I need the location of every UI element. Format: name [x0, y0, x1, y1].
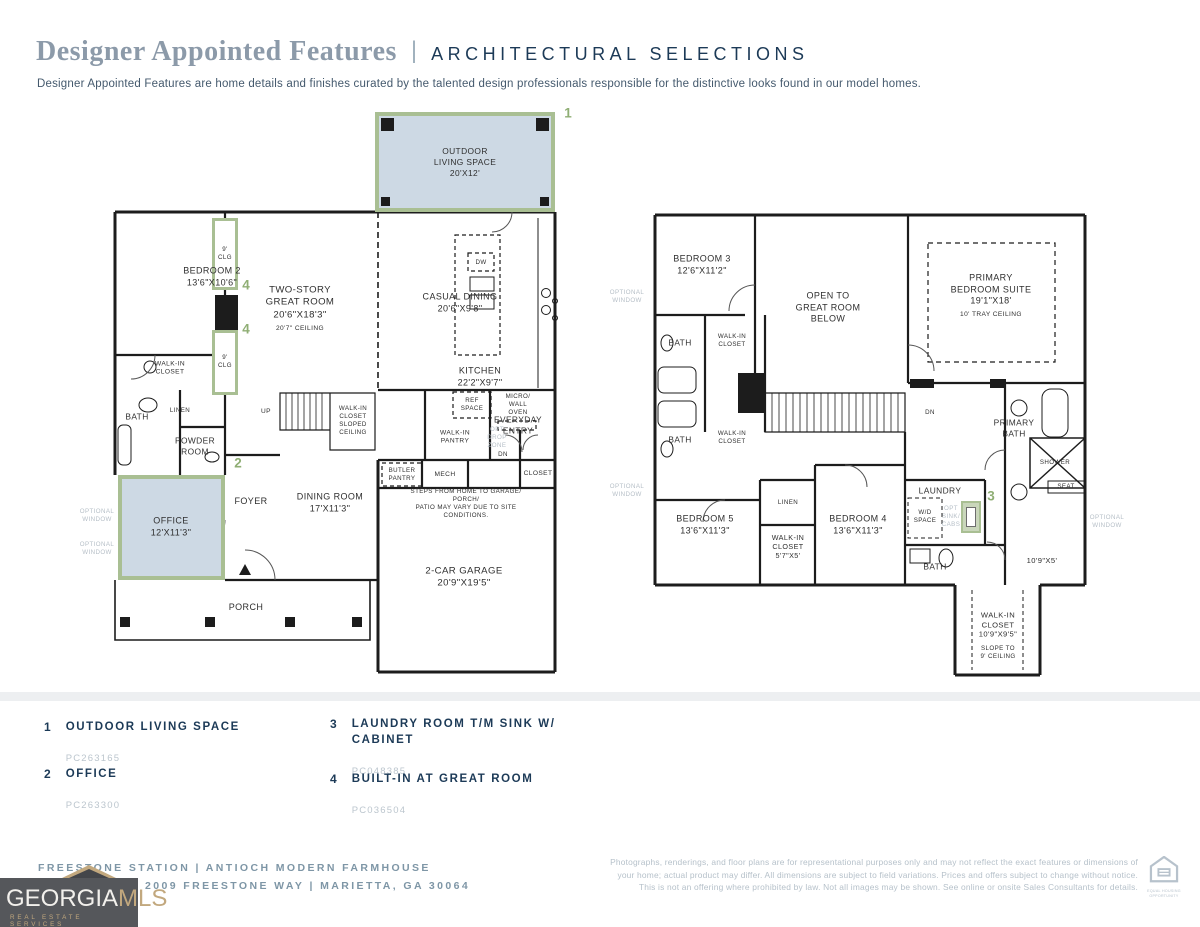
callout-4b: 4	[242, 322, 250, 337]
legend-num-2: 2	[44, 767, 52, 814]
room-label-wic-big: WALK-IN CLOSET 10'9"X9'5"	[979, 610, 1017, 639]
callout-2: 2	[234, 456, 242, 471]
room-label-primary-bath: PRIMARY BATH	[994, 417, 1035, 439]
page: Designer Appointed Features | ARCHITECTU…	[0, 0, 1200, 927]
equal-housing-logo: EQUAL HOUSING OPPORTUNITY	[1146, 856, 1182, 898]
room-label-kitchen: KITCHEN 22'2"X9'7"	[458, 365, 503, 388]
label-dn: DN	[498, 451, 508, 459]
column-mark	[381, 118, 394, 131]
section-title: ARCHITECTURAL SELECTIONS	[431, 44, 808, 65]
first-floor-plan: 1 2 4 4 OUTDOOR LIVING SPACE 20'X12' BED…	[60, 105, 580, 685]
legend-num-3: 3	[330, 717, 338, 779]
room-label-bath-3: BATH	[923, 562, 946, 573]
label-optional-window-4: OPTIONAL WINDOW	[610, 483, 645, 499]
room-label-wic-sloped: WALK-IN CLOSET SLOPED CEILING	[339, 405, 367, 437]
disclaimer-text: Photographs, renderings, and floor plans…	[600, 856, 1138, 894]
room-label-wic-5x5: WALK-IN CLOSET 5'7"X5'	[772, 533, 804, 561]
callout-3: 3	[987, 489, 995, 504]
room-label-everyday-entry: EVERYDAY ENTRY	[494, 414, 542, 436]
label-tray-ceiling: 10' TRAY CEILING	[960, 311, 1022, 319]
room-label-bath: BATH	[125, 412, 148, 423]
legend-code-2: PC263300	[66, 800, 121, 811]
room-label-bath-1: BATH	[668, 338, 691, 349]
label-dw: DW	[475, 259, 486, 267]
room-label-garage: 2-CAR GARAGE 20'9"X19'5"	[425, 566, 502, 591]
room-label-walk-in-pantry: WALK-IN PANTRY	[440, 430, 470, 447]
legend-num-4: 4	[330, 772, 338, 819]
room-label-porch: PORCH	[229, 602, 264, 614]
label-wic-big-slope: SLOPE TO 9' CEILING	[980, 645, 1015, 661]
legend-label-text-4: BUILT-IN AT GREAT ROOM	[352, 773, 534, 785]
logo-mls: MLS	[118, 885, 167, 912]
page-title: Designer Appointed Features	[36, 36, 397, 68]
logo-tagline: REAL ESTATE SERVICES	[10, 914, 138, 927]
label-ref-space: REF SPACE	[461, 397, 484, 413]
equal-housing-text: EQUAL HOUSING OPPORTUNITY	[1146, 889, 1182, 898]
georgia-mls-logo: GEORGIAMLS REAL ESTATE SERVICES	[0, 878, 138, 927]
room-label-wic-2: WALK-IN CLOSET	[718, 430, 746, 446]
title-divider: |	[411, 37, 417, 65]
room-label-primary-suite: PRIMARY BEDROOM SUITE 19'1"X18'	[951, 273, 1032, 308]
second-floor-plan: 3 BEDROOM 3 12'6"X11'2" OPTIONAL WINDOW …	[610, 195, 1170, 695]
label-great-room-ceiling: 20'7" CEILING	[276, 325, 324, 333]
legend-label-1: OUTDOOR LIVING SPACE PC263165	[66, 720, 240, 767]
label-hall-dim: 10'9"X5'	[1027, 556, 1058, 566]
legend-label-text-3: LAUNDRY ROOM T/M SINK W/ CABINET	[352, 718, 556, 746]
highlight-laundry-sink	[961, 501, 981, 533]
label-dn-2: DN	[925, 409, 935, 417]
room-label-laundry: LAUNDRY	[919, 486, 962, 497]
room-label-closet: CLOSET	[524, 470, 553, 478]
room-label-bedroom3: BEDROOM 3 12'6"X11'2"	[673, 253, 731, 276]
label-optional-window-3: OPTIONAL WINDOW	[610, 289, 645, 305]
column-mark	[536, 118, 549, 131]
legend-code-4: PC036504	[352, 805, 407, 816]
room-label-linen-2: LINEN	[778, 499, 798, 507]
legend-label-text-2: OFFICE	[66, 768, 118, 780]
legend-label-2: OFFICE PC263300	[66, 767, 121, 814]
legend-item-4: 4 BUILT-IN AT GREAT ROOM PC036504	[330, 772, 533, 819]
room-label-linen: LINEN	[170, 407, 190, 415]
logo-roof-icon	[54, 865, 124, 885]
room-label-bedroom4: BEDROOM 4 13'6"X11'3"	[829, 513, 887, 536]
equal-housing-icon	[1149, 856, 1179, 884]
room-label-foyer: FOYER	[234, 496, 267, 508]
logo-text: GEORGIAMLS	[6, 885, 167, 913]
room-label-great-room: TWO-STORY GREAT ROOM 20'6"X18'3"	[266, 285, 335, 322]
column-mark	[381, 197, 390, 206]
legend-item-2: 2 OFFICE PC263300	[44, 767, 120, 814]
community-address: 2009 FREESTONE WAY | MARIETTA, GA 30064	[145, 880, 470, 892]
room-label-dining-room: DINING ROOM 17'X11'3"	[297, 491, 363, 514]
label-optional-window-2: OPTIONAL WINDOW	[80, 541, 115, 557]
room-label-wic-1: WALK-IN CLOSET	[718, 333, 746, 349]
legend-label-4: BUILT-IN AT GREAT ROOM PC036504	[352, 772, 534, 819]
room-label-mech: MECH	[434, 471, 455, 479]
legend-item-3: 3 LAUNDRY ROOM T/M SINK W/ CABINET PC048…	[330, 717, 556, 779]
header: Designer Appointed Features | ARCHITECTU…	[36, 36, 809, 68]
room-label-bedroom2: BEDROOM 2 13'6"X10'6"	[183, 265, 241, 288]
label-9-clg-top: 9' CLG	[218, 246, 232, 262]
legend-label-3: LAUNDRY ROOM T/M SINK W/ CABINET PC04838…	[352, 717, 556, 779]
laundry-sink-basin	[966, 507, 976, 527]
room-label-bedroom5: BEDROOM 5 13'6"X11'3"	[676, 513, 734, 536]
room-label-powder-room: POWDER ROOM	[175, 435, 215, 457]
legend-label-text-1: OUTDOOR LIVING SPACE	[66, 721, 240, 733]
callout-4a: 4	[242, 278, 250, 293]
label-steps-note: STEPS FROM HOME TO GARAGE/ PORCH/ PATIO …	[409, 488, 523, 520]
legend-item-1: 1 OUTDOOR LIVING SPACE PC263165	[44, 720, 240, 767]
room-label-walk-in-closet: WALK-IN CLOSET	[155, 361, 185, 378]
label-opt-sink-cabs: OPT SINK/ CABS	[942, 505, 960, 529]
column-mark	[540, 197, 549, 206]
section-divider	[0, 692, 1200, 701]
room-label-office: OFFICE 12'X11'3"	[151, 515, 192, 538]
label-optional-window-1: OPTIONAL WINDOW	[80, 508, 115, 524]
label-shower: SHOWER	[1040, 459, 1070, 467]
room-label-open-below: OPEN TO GREAT ROOM BELOW	[796, 291, 861, 326]
room-label-bath-2: BATH	[668, 435, 691, 446]
room-label-outdoor-living: OUTDOOR LIVING SPACE 20'X12'	[434, 146, 496, 178]
label-wd-space: W/D SPACE	[914, 509, 937, 525]
logo-georgia: GEORGIA	[6, 885, 118, 912]
label-optional-window-5: OPTIONAL WINDOW	[1090, 514, 1125, 530]
header-description: Designer Appointed Features are home det…	[37, 78, 921, 90]
room-label-casual-dining: CASUAL DINING 20'6"X9'8"	[423, 291, 498, 314]
label-seat: SEAT	[1057, 483, 1074, 491]
label-up: UP	[261, 408, 271, 416]
legend-num-1: 1	[44, 720, 52, 767]
label-9-clg-bottom: 9' CLG	[218, 354, 232, 370]
callout-1: 1	[564, 106, 572, 121]
legend-code-1: PC263165	[66, 753, 121, 764]
room-label-butler-pantry: BUTLER PANTRY	[389, 467, 416, 483]
